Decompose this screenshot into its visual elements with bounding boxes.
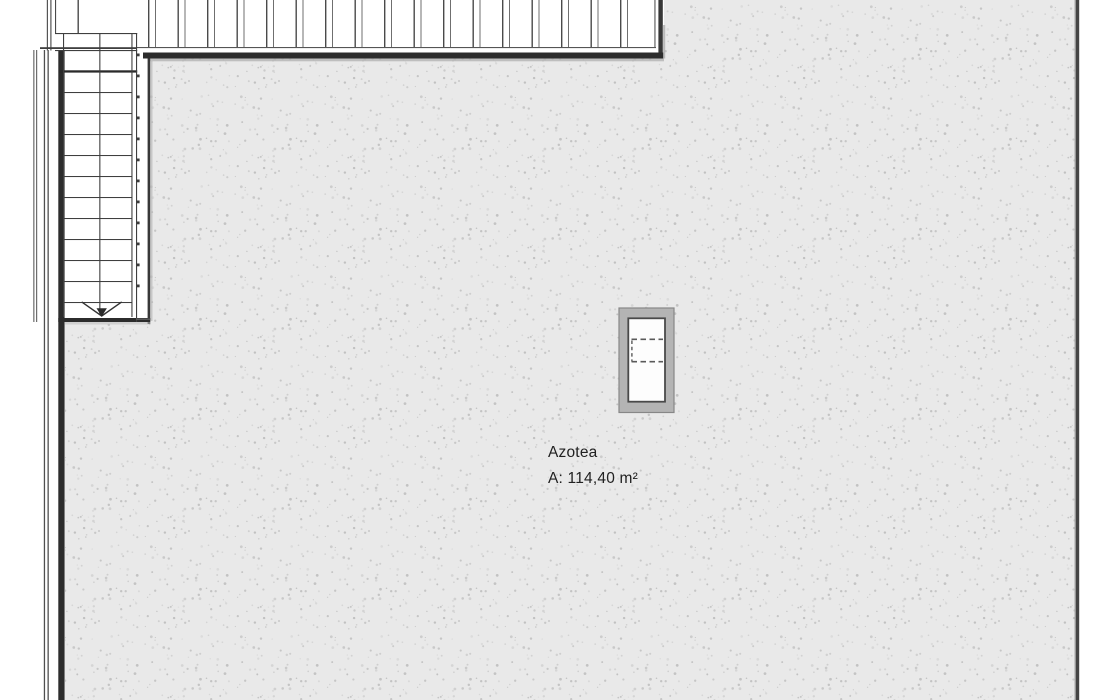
stair-landing-line-2	[55, 50, 137, 51]
pergola-inner-edge	[137, 47, 656, 48]
pergola-roof	[47, 0, 665, 59]
stairs-down-arrow-icon	[82, 302, 122, 317]
terrace-floor-texture	[65, 0, 1076, 700]
shaft-right-wall-shadow	[150, 61, 152, 321]
room-name: Azotea	[548, 444, 638, 461]
left-wall-line-2	[48, 50, 49, 700]
parapet-right-shadow	[1075, 0, 1076, 700]
room-label: Azotea A: 114,40 m²	[548, 444, 638, 487]
pergola-left-edge-inner	[50, 0, 51, 51]
stair-treads	[63, 92, 132, 303]
room-area: A: 114,40 m²	[548, 470, 638, 487]
roof-hatch-opening	[628, 318, 665, 401]
pergola-right-edge-inner	[654, 0, 655, 48]
left-outer-wall-line-1	[33, 50, 34, 322]
stair-bottom-edge-1	[136, 319, 151, 320]
staircase	[40, 33, 151, 322]
stair-break-line	[59, 70, 138, 72]
stair-baluster-dots	[137, 54, 140, 288]
left-outer-wall-line-2	[36, 50, 37, 322]
roof-hatch	[619, 308, 674, 413]
shaft-bottom-wall-shadow	[65, 322, 150, 324]
floorplan-canvas: Azotea A: 114,40 m²	[0, 0, 1120, 700]
shaft-right-wall	[148, 59, 151, 325]
stair-left-stringer	[63, 33, 64, 317]
pergola-left-edge	[47, 0, 48, 51]
parapet-right	[1076, 0, 1079, 700]
stair-landing-edge	[40, 47, 137, 49]
pergola-right-edge	[658, 0, 662, 53]
parapet-top-shadow	[150, 59, 664, 62]
stair-landing-line-1	[55, 33, 137, 34]
left-wall-line-1	[44, 50, 45, 700]
stair-walk-line	[99, 33, 100, 314]
floorplan-drawing	[0, 0, 1120, 700]
terrace-floor	[65, 0, 1076, 700]
parapet-top	[143, 53, 663, 59]
stair-right-stringer	[131, 33, 132, 317]
